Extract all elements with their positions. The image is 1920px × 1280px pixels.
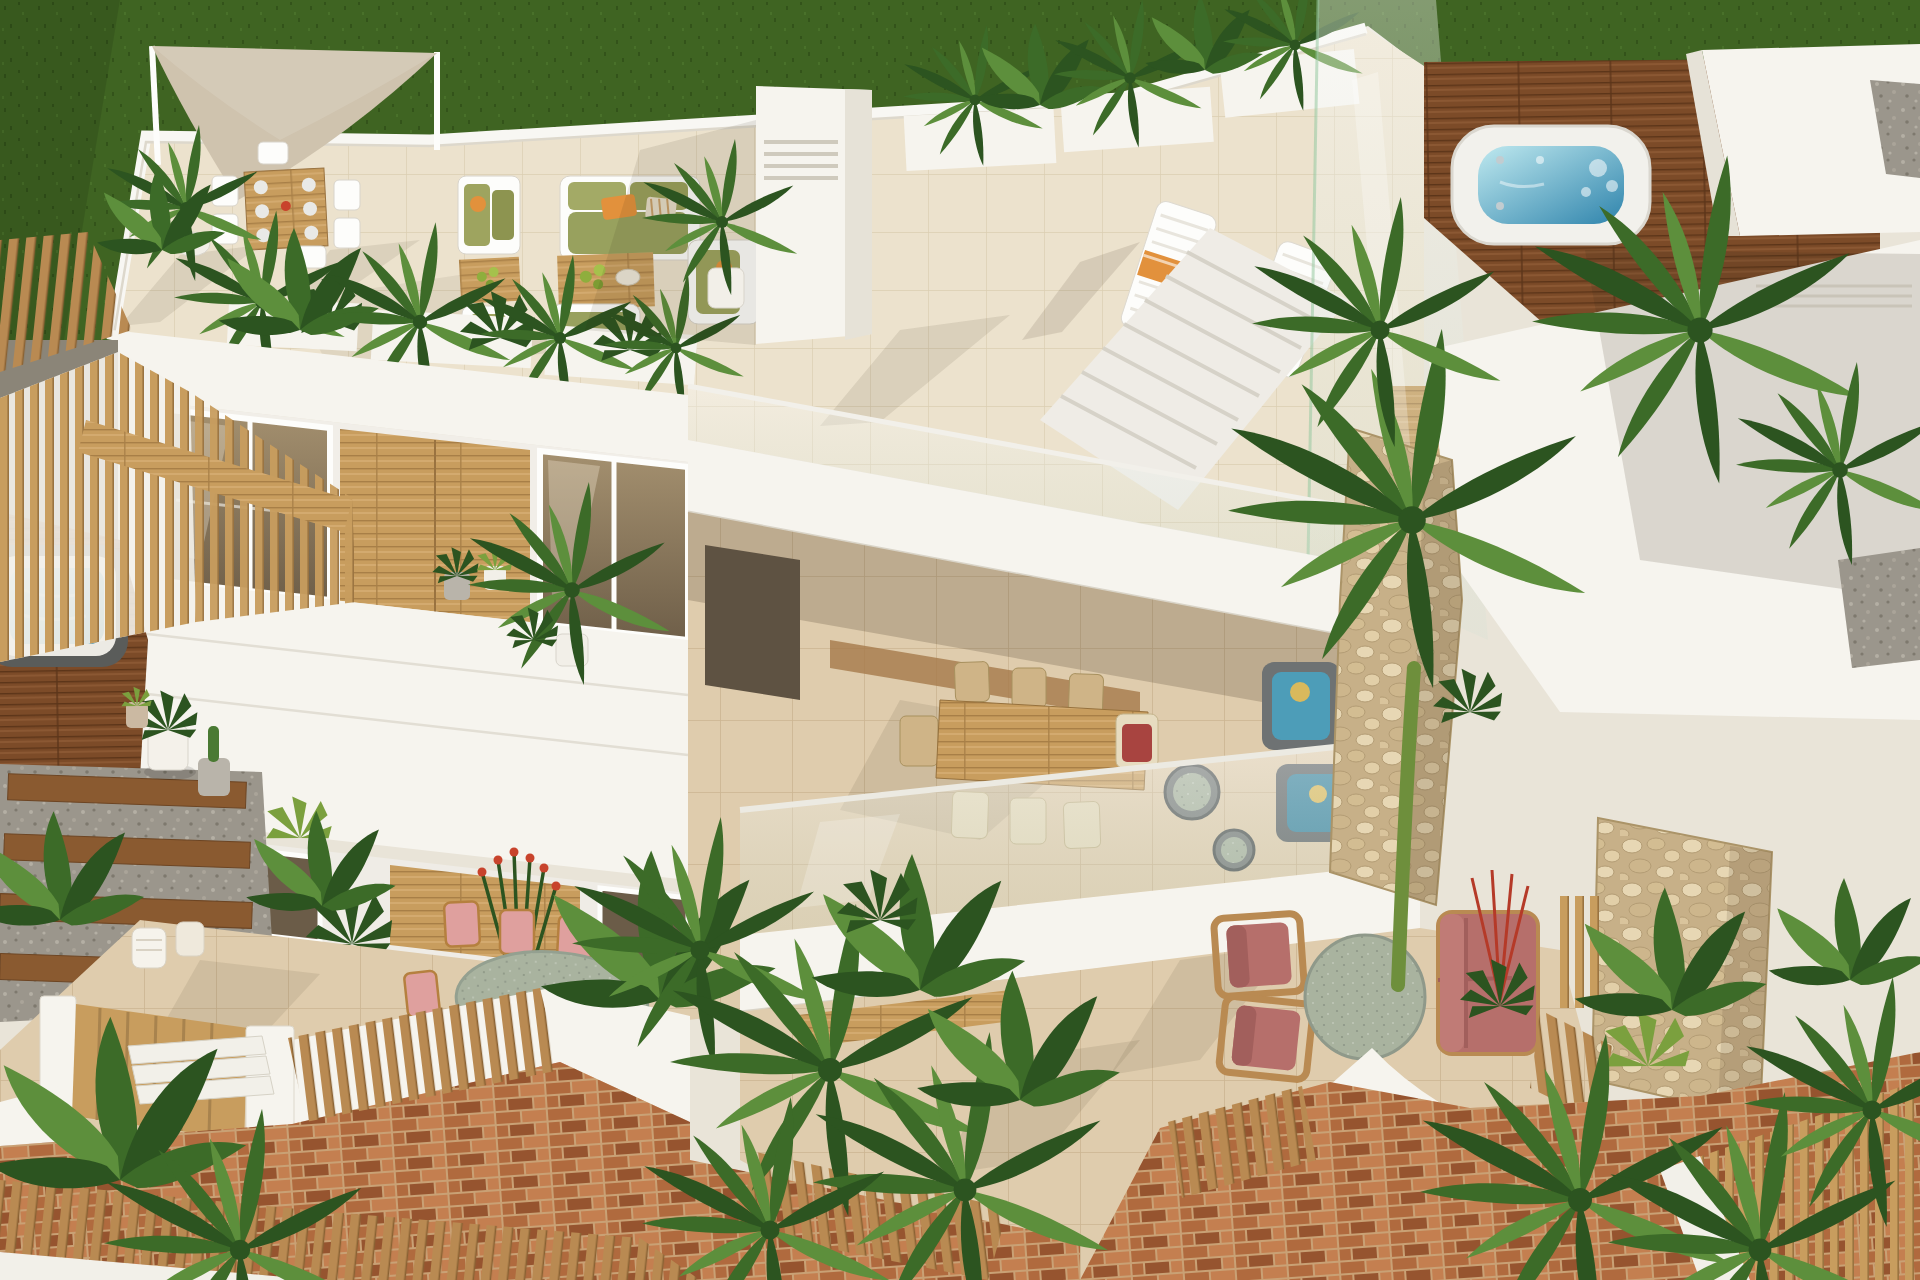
render-canvas: [0, 0, 1920, 1280]
wood-panel: [340, 429, 530, 622]
red-cushion-chair: [1116, 714, 1158, 768]
pebbles: [1838, 548, 1920, 668]
stone-table: [1305, 935, 1425, 1059]
vase: [132, 928, 166, 968]
orange-pillow: [470, 196, 486, 212]
vase: [176, 922, 204, 956]
architectural-render: [0, 0, 1920, 1280]
slat-wall: [1556, 896, 1604, 1008]
yellow-pillow: [1290, 682, 1310, 702]
